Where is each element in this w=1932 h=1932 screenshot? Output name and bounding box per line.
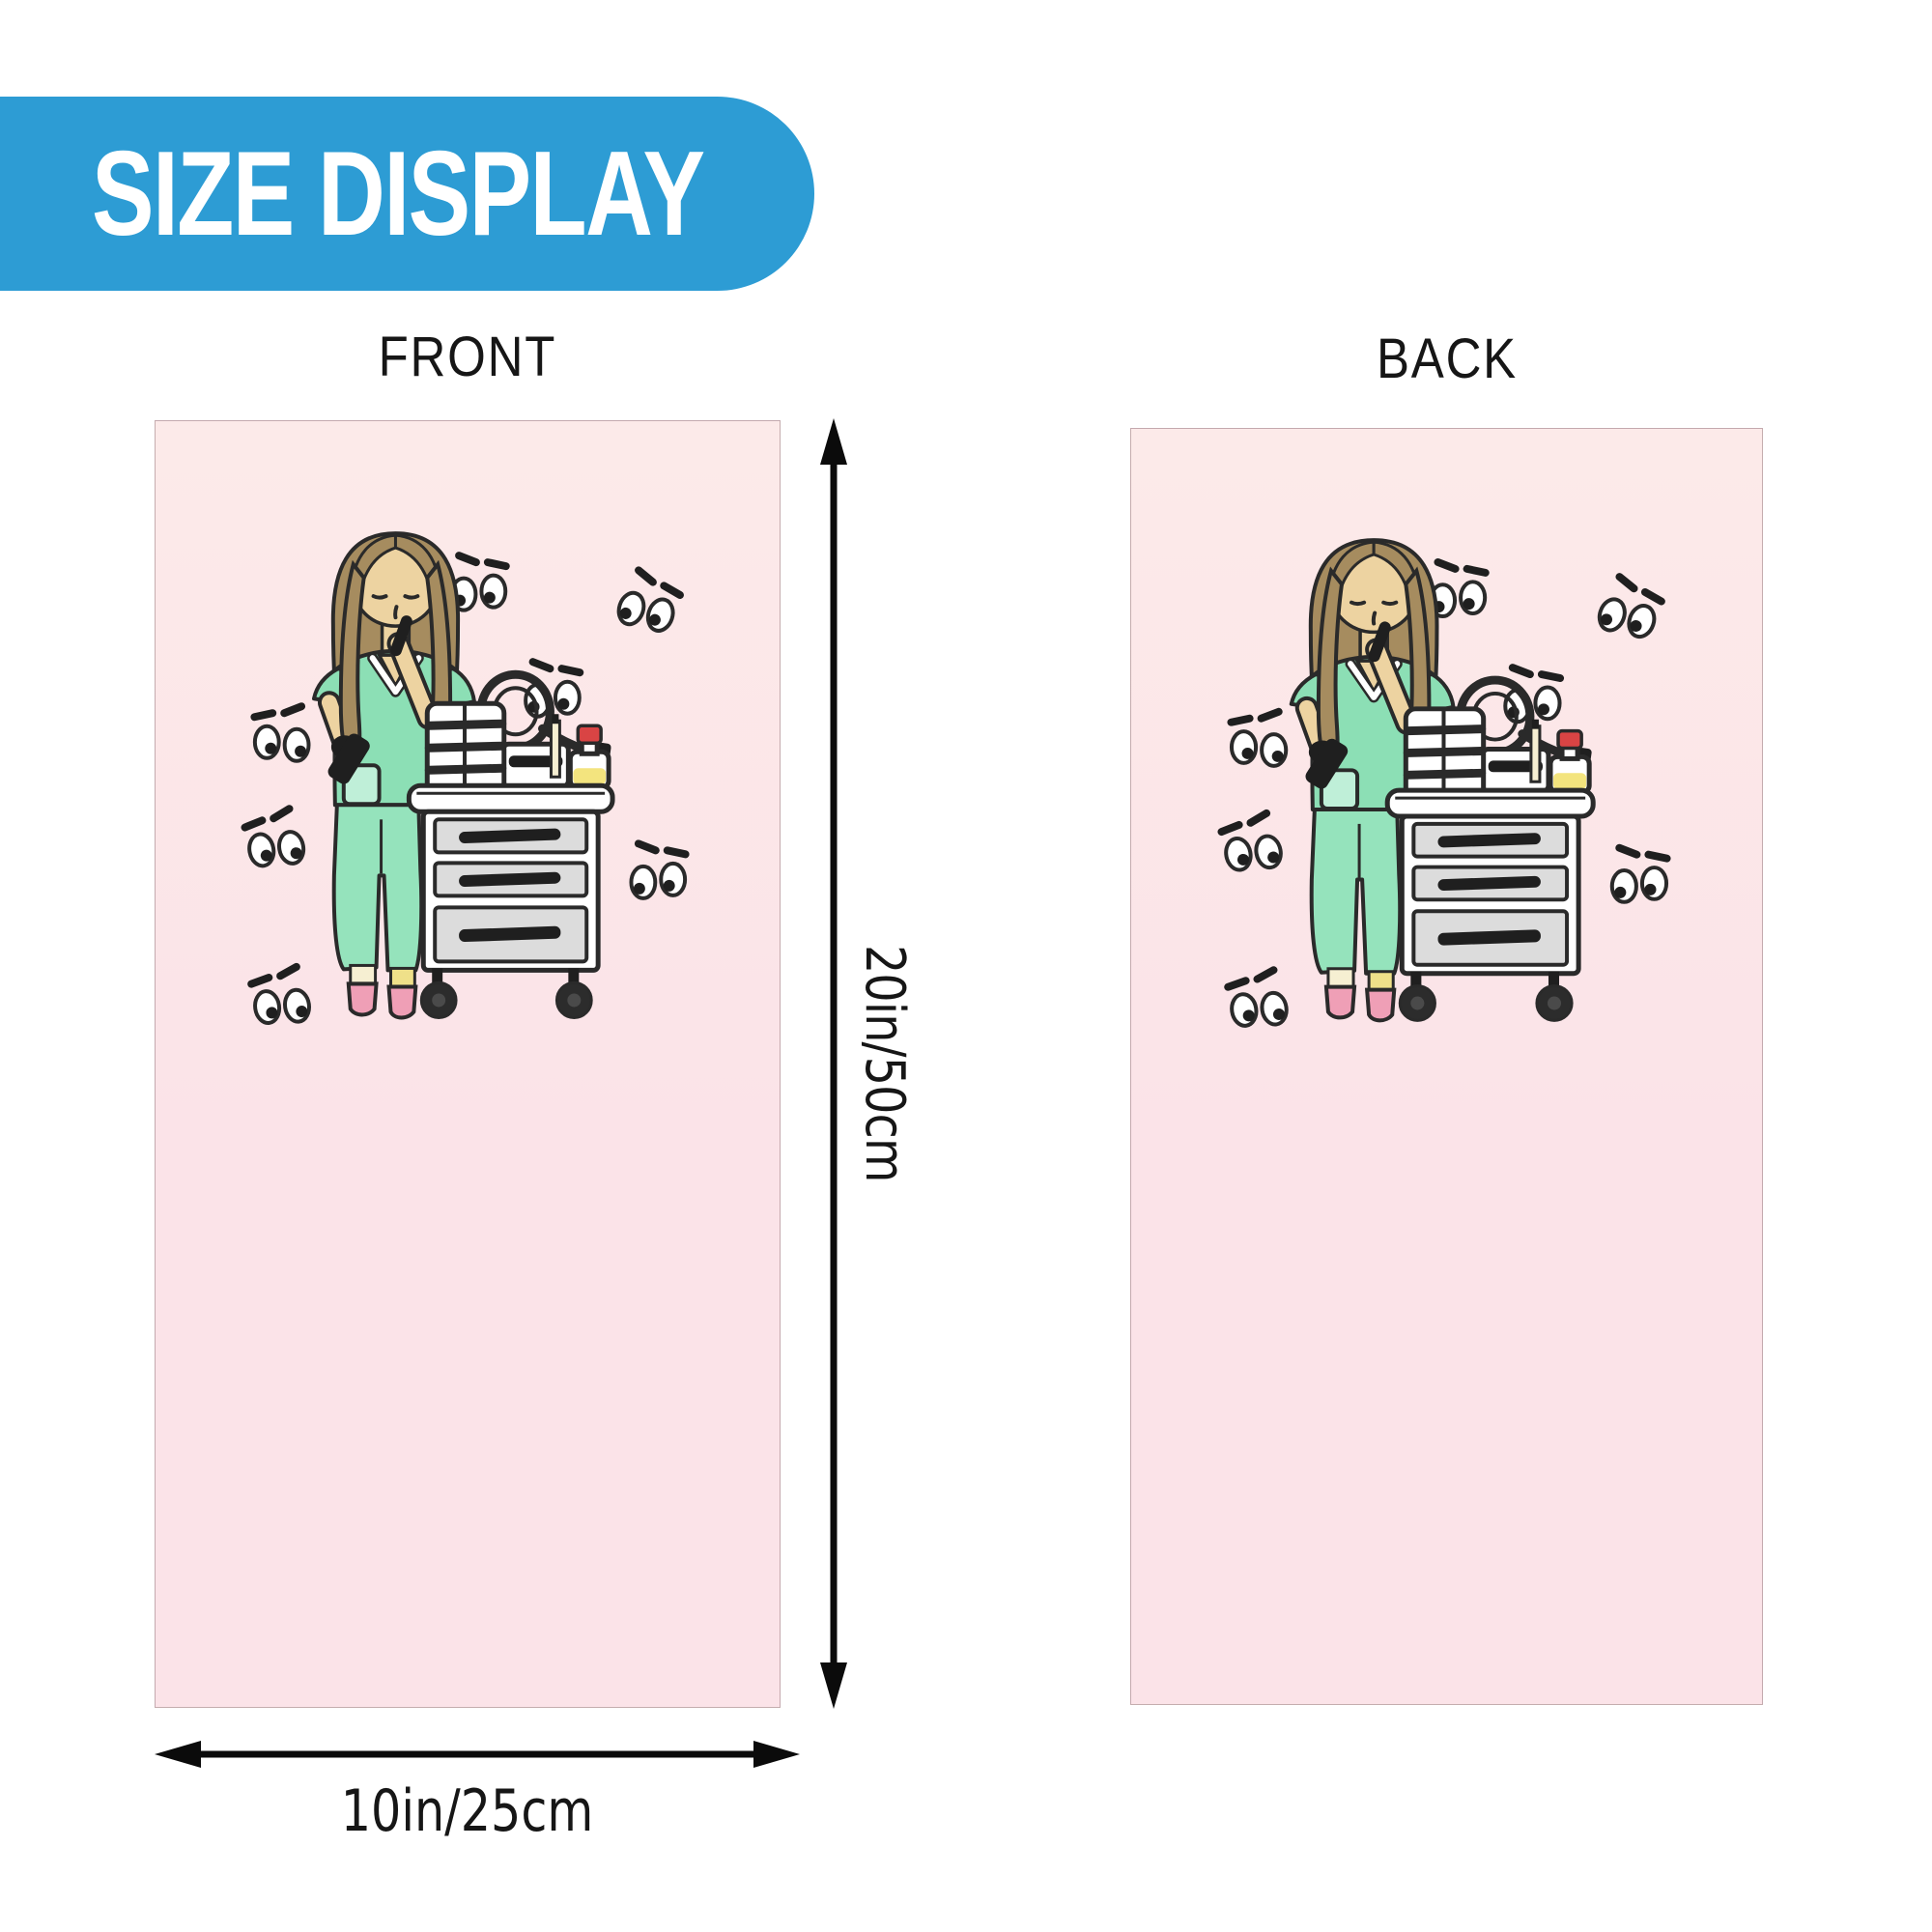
- width-dimension-label: 10in/25cm: [155, 1777, 781, 1845]
- nurse-shh-illustration-back: [1131, 429, 1762, 1704]
- height-dimension-label: 20in/50cm: [853, 945, 916, 1181]
- size-display-graphic: SIZE DISPLAY FRONT BACK 20in/50cm 10in/2…: [0, 0, 1932, 1932]
- back-panel: [1130, 428, 1763, 1705]
- width-dimension-text: 10in/25cm: [341, 1777, 594, 1845]
- nurse-shh-illustration-front: [156, 421, 780, 1707]
- back-label-text: BACK: [1376, 327, 1517, 391]
- size-display-badge: SIZE DISPLAY: [0, 97, 814, 291]
- back-label: BACK: [1130, 327, 1763, 391]
- badge-label: SIZE DISPLAY: [92, 126, 703, 263]
- front-label-text: FRONT: [379, 325, 557, 389]
- front-panel: [155, 420, 781, 1708]
- height-dimension-arrow: [817, 416, 850, 1711]
- width-dimension-arrow: [153, 1738, 802, 1771]
- front-label: FRONT: [155, 325, 781, 389]
